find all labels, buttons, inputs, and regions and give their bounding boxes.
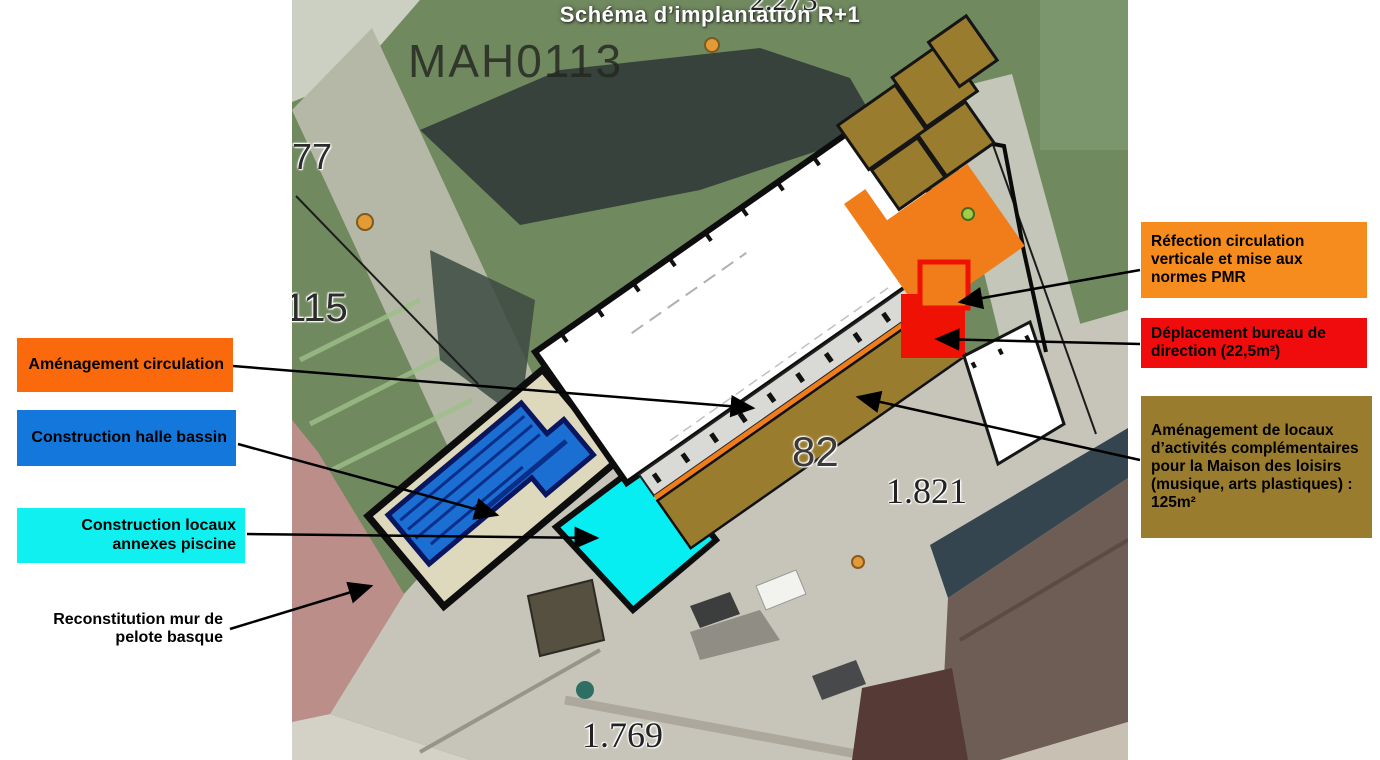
legend-label: Aménagement de locaux d’activités complé…: [1151, 422, 1364, 511]
legend-box-amenagement-circulation: Aménagement circulation: [17, 338, 233, 392]
legend-label: Construction locaux annexes piscine: [23, 517, 236, 554]
survey-marker: [852, 556, 864, 568]
legend-label: Construction halle bassin: [23, 429, 227, 447]
legend-box-refection-circulation: Réfection circulation verticale et mise …: [1141, 222, 1367, 298]
legend-label: Reconstitution mur de pelote basque: [16, 611, 223, 648]
legend-box-halle-bassin: Construction halle bassin: [17, 410, 236, 466]
survey-marker: [705, 38, 719, 52]
survey-marker: [357, 214, 373, 230]
survey-marker-green: [962, 208, 974, 220]
legend-label: Déplacement bureau de direction (22,5m²): [1151, 325, 1359, 361]
legend-box-locaux-activites: Aménagement de locaux d’activités complé…: [1141, 396, 1372, 538]
legend-box-locaux-piscine: Construction locaux annexes piscine: [17, 508, 245, 563]
schema-implantation-page: Schéma d’implantation R+1 2.273 MAH0113 …: [0, 0, 1380, 760]
legend-box-bureau-direction: Déplacement bureau de direction (22,5m²): [1141, 318, 1367, 368]
legend-label: Réfection circulation verticale et mise …: [1151, 233, 1359, 286]
legend-text-mur-pelote: Reconstitution mur de pelote basque: [10, 604, 232, 654]
legend-label: Aménagement circulation: [23, 356, 224, 374]
